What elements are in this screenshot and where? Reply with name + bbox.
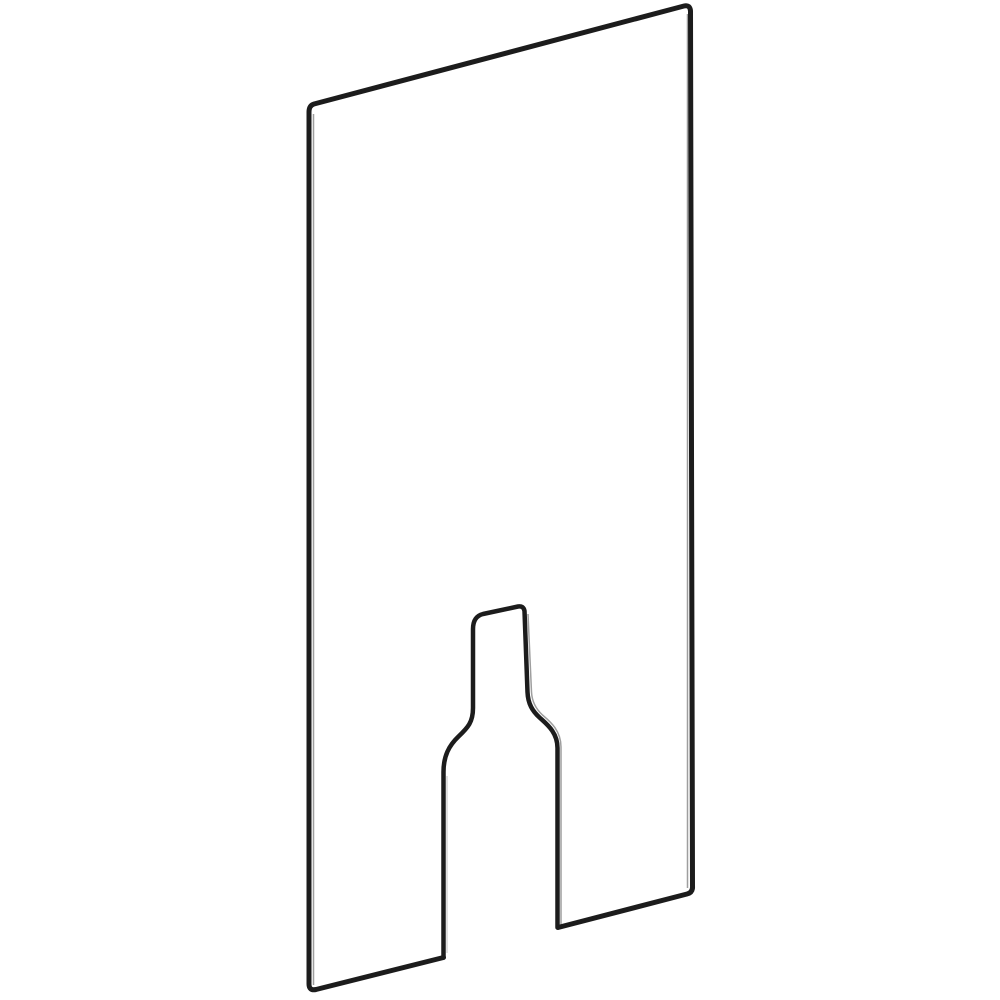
keyhole-cutout-outline (444, 606, 558, 957)
panel-technical-drawing (0, 0, 1000, 1000)
illustration-canvas (0, 0, 1000, 1000)
panel-outline (309, 6, 693, 990)
